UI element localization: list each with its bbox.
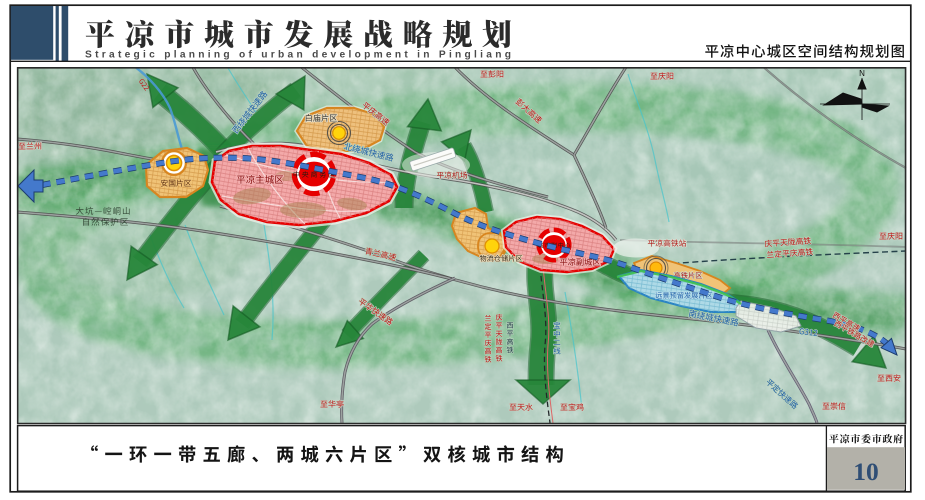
svg-text:10: 10 [853,457,879,486]
svg-text:Strategic planning of urban de: Strategic planning of urban development … [85,50,514,61]
svg-text:N: N [859,69,865,78]
